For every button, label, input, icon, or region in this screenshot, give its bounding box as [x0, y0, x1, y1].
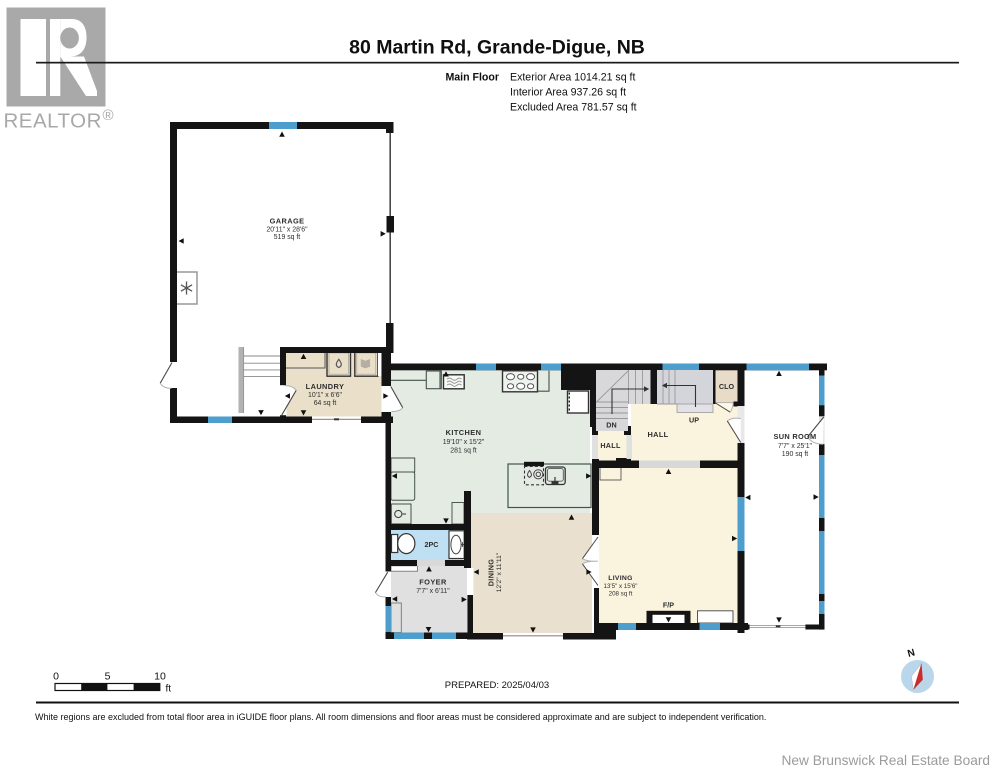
svg-text:SUN ROOM: SUN ROOM	[773, 432, 816, 441]
svg-text:DINING: DINING	[486, 559, 495, 587]
svg-text:281 sq ft: 281 sq ft	[450, 447, 477, 454]
svg-text:KITCHEN: KITCHEN	[446, 428, 482, 437]
svg-text:GARAGE: GARAGE	[270, 217, 305, 226]
svg-text:20'11" x 28'6": 20'11" x 28'6"	[266, 226, 308, 233]
svg-text:LAUNDRY: LAUNDRY	[306, 382, 345, 391]
svg-text:10: 10	[154, 671, 166, 683]
svg-text:Interior Area 937.26 sq ft: Interior Area 937.26 sq ft	[510, 87, 626, 99]
svg-text:190 sq ft: 190 sq ft	[782, 451, 809, 458]
svg-text:7'7" x 25'1": 7'7" x 25'1"	[778, 443, 813, 450]
svg-text:UP: UP	[689, 416, 699, 425]
svg-text:80 Martin Rd, Grande-Digue, NB: 80 Martin Rd, Grande-Digue, NB	[349, 37, 645, 59]
svg-text:ft: ft	[166, 684, 172, 695]
svg-text:13'5" x 15'6": 13'5" x 15'6"	[604, 583, 638, 590]
svg-text:19'10" x 15'2": 19'10" x 15'2"	[443, 439, 485, 446]
svg-text:DN: DN	[606, 421, 616, 430]
svg-text:12'2" x 11'11": 12'2" x 11'11"	[496, 552, 503, 592]
svg-text:Main Floor: Main Floor	[445, 72, 499, 84]
svg-text:2PC: 2PC	[425, 540, 439, 549]
svg-text:®: ®	[103, 107, 114, 124]
svg-text:519 sq ft: 519 sq ft	[274, 234, 301, 241]
svg-text:10'1" x 6'6": 10'1" x 6'6"	[308, 392, 343, 399]
svg-text:0: 0	[53, 671, 59, 683]
svg-text:Exterior Area 1014.21 sq ft: Exterior Area 1014.21 sq ft	[510, 72, 635, 84]
svg-text:New Brunswick Real Estate Boar: New Brunswick Real Estate Board	[782, 753, 990, 768]
svg-text:CLO: CLO	[719, 382, 735, 391]
svg-text:5: 5	[105, 671, 111, 683]
svg-text:HALL: HALL	[600, 441, 621, 450]
svg-text:FOYER: FOYER	[419, 578, 447, 587]
svg-text:REALTOR: REALTOR	[4, 110, 102, 133]
svg-text:PREPARED: 2025/04/03: PREPARED: 2025/04/03	[445, 680, 549, 691]
svg-text:64 sq ft: 64 sq ft	[314, 400, 337, 407]
svg-text:White regions are excluded fro: White regions are excluded from total fl…	[35, 712, 766, 722]
svg-text:208 sq ft: 208 sq ft	[609, 591, 633, 598]
svg-text:LIVING: LIVING	[608, 575, 632, 582]
svg-text:HALL: HALL	[648, 430, 669, 439]
svg-text:Excluded Area 781.57 sq ft: Excluded Area 781.57 sq ft	[510, 102, 637, 114]
svg-text:F/P: F/P	[663, 601, 674, 610]
svg-text:7'7" x 6'11": 7'7" x 6'11"	[416, 588, 450, 595]
